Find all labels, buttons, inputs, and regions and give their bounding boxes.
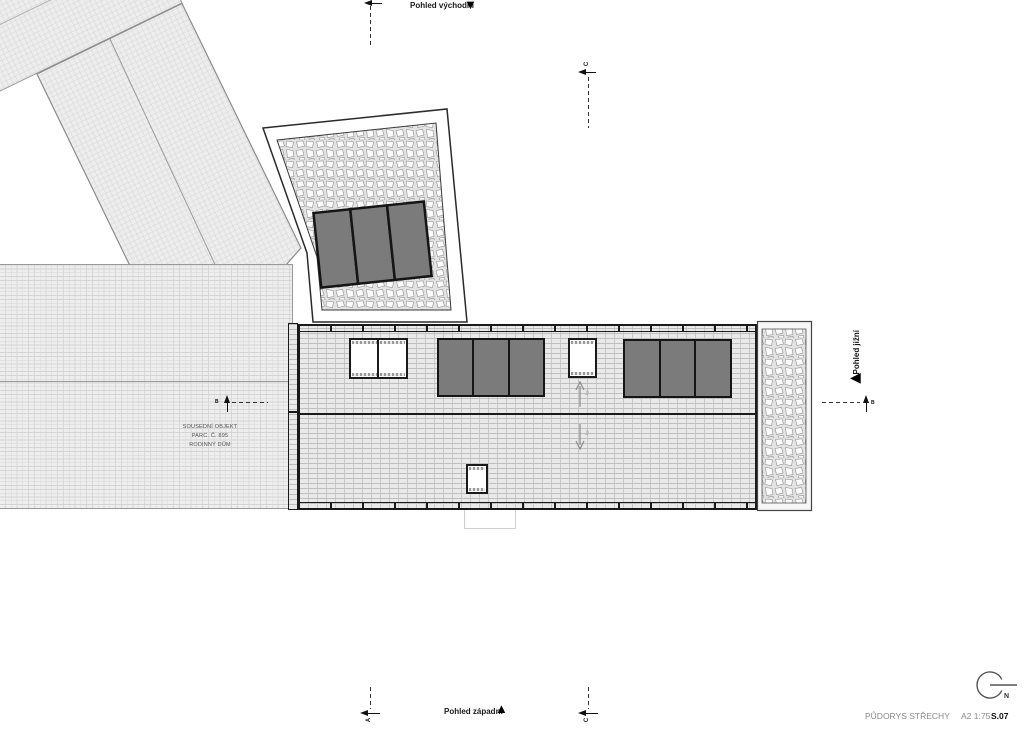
section-c-line-bottom xyxy=(585,713,598,714)
slope-value-upper: 10° xyxy=(584,388,591,396)
skylight-frame-bottom xyxy=(571,372,594,375)
section-c-dash-top xyxy=(588,77,589,128)
slope-value-lower: 10° xyxy=(584,428,591,436)
sheet-number: S.07 xyxy=(991,711,1009,721)
roof-projection-below xyxy=(464,510,516,529)
main-ridge-line xyxy=(300,413,755,415)
section-c-dash-bottom xyxy=(588,687,589,709)
neighbor-ridge-line xyxy=(0,381,292,382)
section-a-dash-bottom xyxy=(370,687,371,709)
view-west-direction-icon: ▲ xyxy=(495,702,508,715)
main-roof-left-gutter xyxy=(288,323,298,510)
gravel-strip-east xyxy=(754,318,816,514)
neighbor-label-line2: PARC. Č. 895 xyxy=(155,432,265,441)
solar-panel xyxy=(510,340,543,395)
gutter-divider xyxy=(289,411,297,413)
solar-panel xyxy=(625,341,659,396)
skylight-small-upper xyxy=(568,338,597,378)
solar-array-west xyxy=(437,338,545,397)
skylight-divider xyxy=(377,340,379,377)
section-b-stem-right xyxy=(866,401,867,412)
skylight-small-lower xyxy=(466,464,488,494)
drawing-format-scale: A2 1:75 xyxy=(961,711,990,721)
solar-panel xyxy=(696,341,730,396)
upper-wing-roof xyxy=(255,100,475,330)
section-a-dash-top xyxy=(370,6,371,45)
view-east-direction-icon: ▼ xyxy=(464,0,477,11)
skylight-frame-top xyxy=(571,341,594,344)
skylight-double xyxy=(349,338,408,379)
section-b-label-left: B xyxy=(215,400,219,405)
section-b-label-right: B xyxy=(871,401,875,406)
solar-panel xyxy=(661,341,695,396)
view-west-label: Pohled západní xyxy=(444,707,503,716)
section-a-label-bottom: A xyxy=(366,718,372,722)
solar-panel xyxy=(474,340,507,395)
skylight-frame-top xyxy=(469,467,485,470)
eave-ticks-bottom xyxy=(300,502,755,508)
section-a-line-top xyxy=(371,3,382,4)
north-label: N xyxy=(1004,693,1009,700)
section-c-label-bottom: C xyxy=(584,718,590,722)
section-b-dash-left xyxy=(232,402,268,403)
solar-panel xyxy=(439,340,472,395)
view-south-label: Pohled jižní xyxy=(852,330,861,374)
section-a-line-bottom xyxy=(367,713,380,714)
solar-array-east xyxy=(623,339,732,398)
slope-arrow-down-icon xyxy=(572,422,588,452)
neighbor-label-line3: RODINNÝ DŮM xyxy=(155,441,265,450)
skylight-frame-bottom xyxy=(469,488,485,491)
solar-array-upper xyxy=(313,201,431,287)
roof-plan-drawing: SOUSEDNÍ OBJEKT PARC. Č. 895 RODINNÝ DŮM xyxy=(0,0,1024,733)
section-c-line-top xyxy=(585,72,596,73)
neighbor-roof-left xyxy=(0,264,293,509)
section-c-label-top: C xyxy=(584,62,590,66)
section-b-stem-left xyxy=(227,401,228,412)
neighbor-label: SOUSEDNÍ OBJEKT PARC. Č. 895 RODINNÝ DŮM xyxy=(155,423,265,449)
neighbor-label-line1: SOUSEDNÍ OBJEKT xyxy=(155,423,265,432)
section-b-dash-right xyxy=(822,402,860,403)
north-arrow-icon xyxy=(974,668,1022,704)
eave-ticks-top xyxy=(300,326,755,332)
drawing-title: PŮDORYS STŘECHY xyxy=(865,711,950,721)
view-south-direction-icon: ◀ xyxy=(850,370,861,384)
main-roof: 10° 10° xyxy=(298,324,757,510)
